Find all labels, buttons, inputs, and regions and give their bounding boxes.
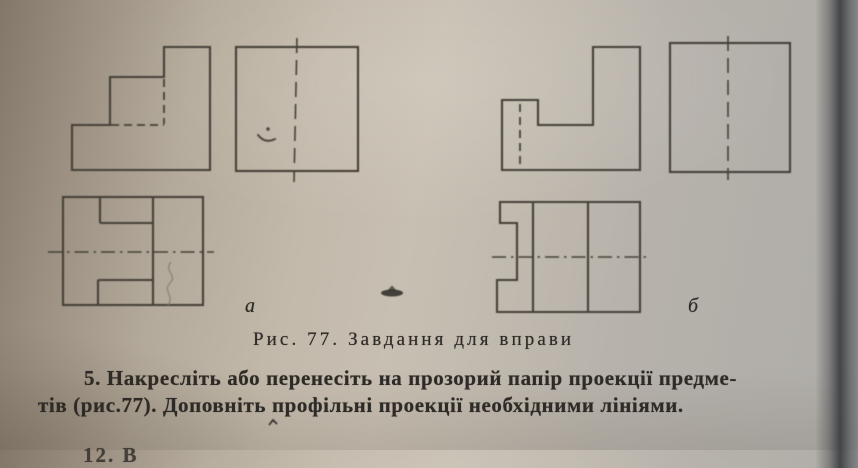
side-view-a <box>236 38 358 182</box>
figure-label-a: а <box>245 295 255 318</box>
ink-blot-mark <box>381 286 403 297</box>
cut-off-next-line: 12. В <box>83 443 139 468</box>
front-view-b <box>502 47 640 170</box>
caret-mark <box>269 420 277 425</box>
figure-label-b: б <box>688 295 698 318</box>
exercise-text-line-2: тів (рис.77). Доповніть профільні проекц… <box>38 393 684 418</box>
ink-curl-mark <box>258 127 275 141</box>
textbook-page-photo: { "document": { "caption": "Рис. 77. Зав… <box>0 0 858 450</box>
top-view-a <box>48 197 214 305</box>
exercise-text-line-1: 5. Накресліть або перенесіть на прозорий… <box>84 366 737 391</box>
figure-caption: Рис. 77. Завдання для вправи <box>253 329 574 351</box>
top-view-b <box>492 202 648 312</box>
pencil-squiggle-mark <box>167 262 172 305</box>
side-view-b <box>670 36 790 180</box>
front-view-a <box>72 47 210 170</box>
